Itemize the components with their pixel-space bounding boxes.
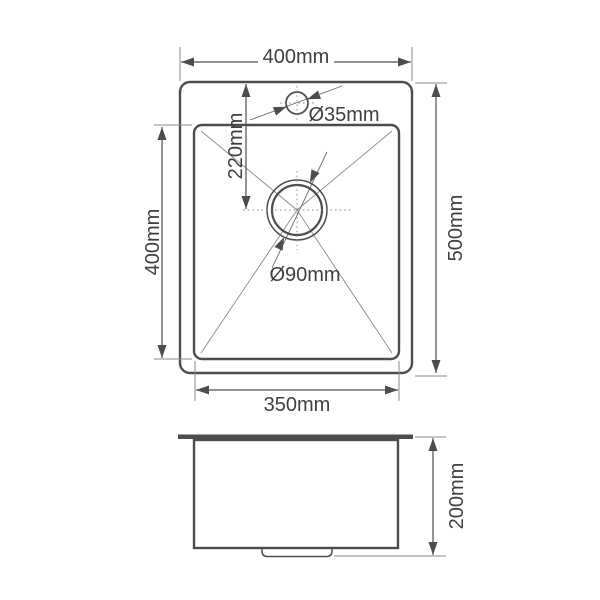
dim-bowl-width: 350mm	[196, 386, 398, 417]
side-drain-fitting	[262, 548, 332, 557]
dim-bowl-width-label: 350mm	[264, 394, 331, 416]
arrowhead	[432, 84, 441, 97]
dim-overall-width: 400mm	[181, 46, 411, 68]
side-rim-flange	[178, 435, 413, 440]
dim-bowl-length-label: 400mm	[142, 209, 164, 276]
side-bowl-body	[194, 440, 398, 548]
side-view: 200mm	[178, 435, 468, 557]
arrowhead	[429, 438, 438, 451]
top-view: 400mm 500mm 220mm 400mm 350m	[142, 46, 467, 416]
dim-bowl-length: 400mm	[142, 127, 167, 358]
dim-overall-width-label: 400mm	[263, 46, 330, 68]
drawing-svg: 400mm 500mm 220mm 400mm 350m	[0, 0, 600, 600]
arrowhead	[432, 360, 441, 373]
arrowhead	[181, 58, 194, 67]
sink-technical-drawing: 400mm 500mm 220mm 400mm 350m	[0, 0, 600, 600]
arrowhead	[158, 345, 167, 358]
dim-bowl-height: 200mm	[429, 438, 469, 555]
dim-bowl-height-label: 200mm	[446, 463, 468, 530]
arrowhead	[398, 58, 411, 67]
dim-faucet-offset-label: 220mm	[225, 113, 247, 180]
arrowhead	[158, 127, 167, 140]
dim-faucet-hole-diameter-label: Ø35mm	[308, 104, 379, 126]
arrowhead	[196, 386, 209, 395]
arrowhead	[385, 386, 398, 395]
dim-overall-depth: 500mm	[432, 84, 468, 373]
dim-drain-diameter-label: Ø90mm	[269, 264, 340, 286]
dim-overall-depth-label: 500mm	[445, 195, 467, 262]
arrowhead	[429, 542, 438, 555]
